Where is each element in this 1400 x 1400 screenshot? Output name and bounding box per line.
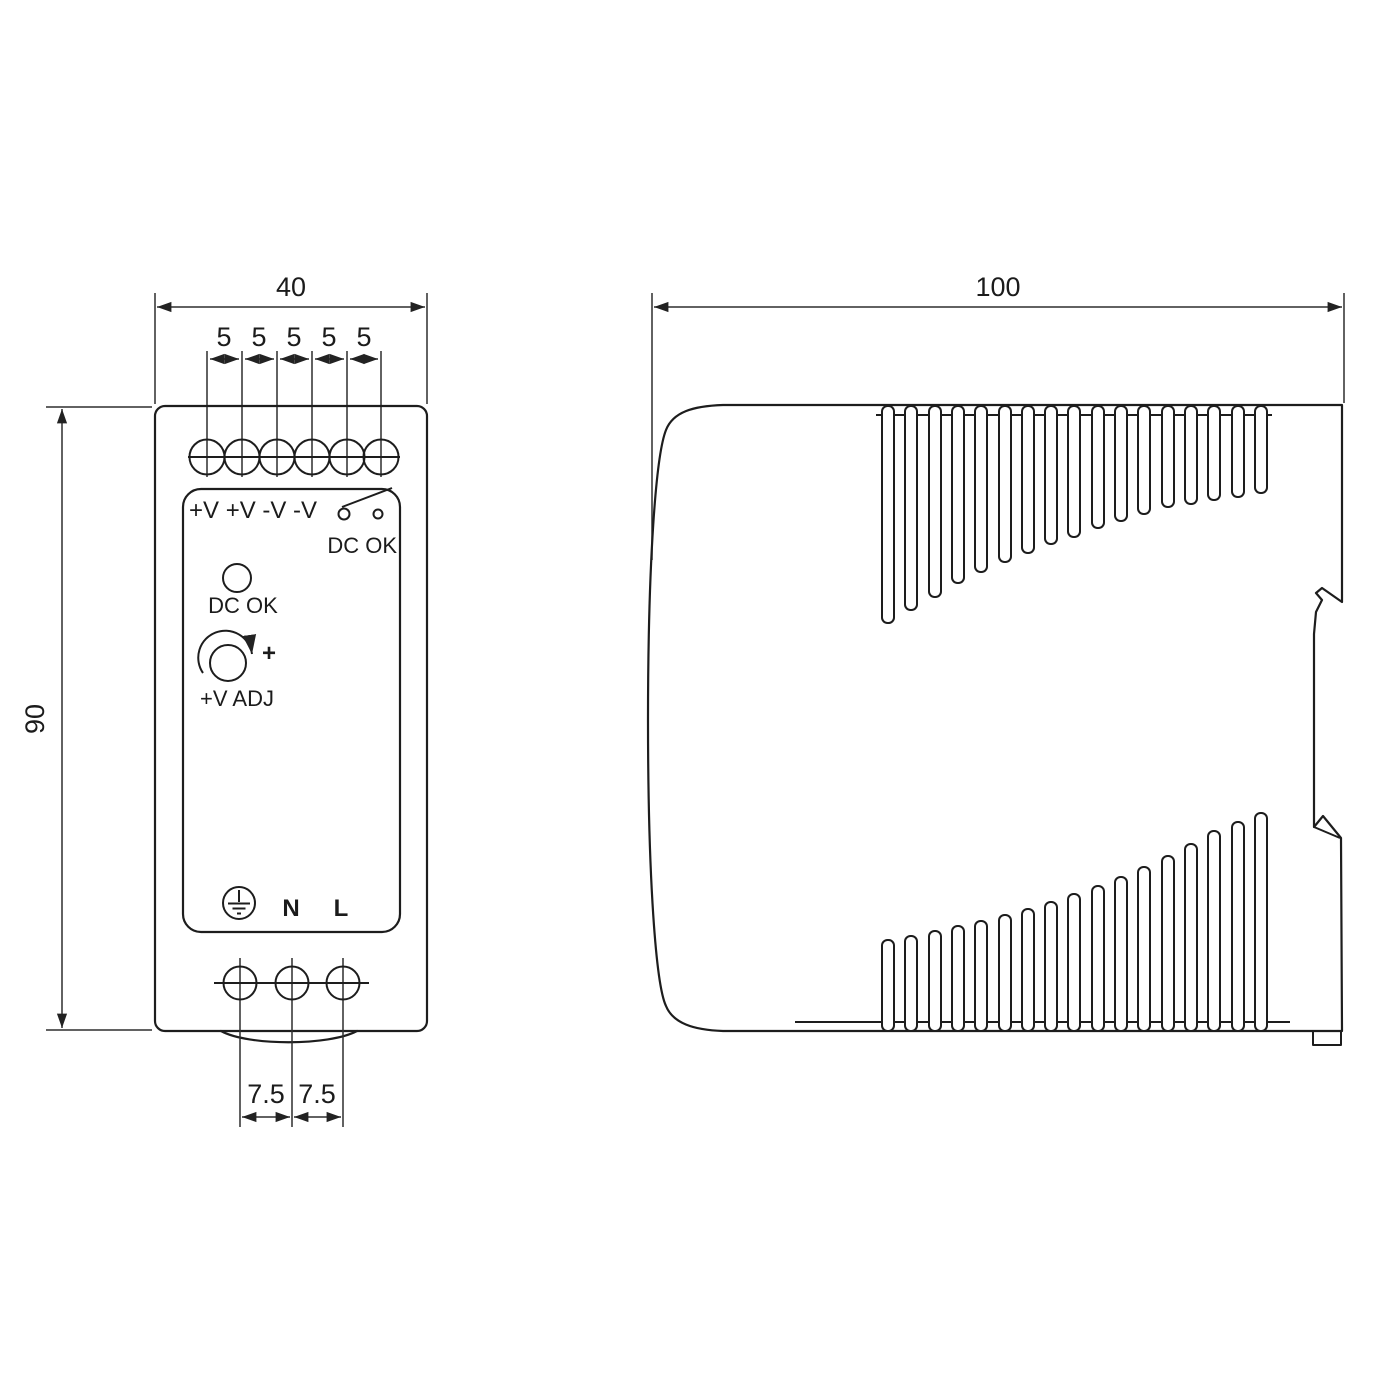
dimension-label-input-pitch: 7.5: [298, 1079, 336, 1109]
vent-slot: [1045, 902, 1057, 1031]
vent-slot: [1255, 813, 1267, 1031]
potentiometer-knob: [210, 645, 246, 681]
vent-slot: [929, 406, 941, 597]
dimension-label-width: 40: [276, 272, 306, 302]
input-terminal-block: [214, 958, 369, 1127]
front-view: 40 5 5 5 5 5 90: [20, 272, 427, 1127]
vent-slot: [1162, 856, 1174, 1031]
dimension-height: 90: [20, 407, 152, 1030]
vent-slot: [952, 406, 964, 583]
line-label: L: [334, 895, 349, 922]
drawing-canvas: 40 5 5 5 5 5 90: [0, 0, 1400, 1400]
vent-slot: [1185, 406, 1197, 504]
vent-slot: [1138, 406, 1150, 514]
mounting-foot: [1313, 1031, 1341, 1045]
dimension-label-depth: 100: [975, 272, 1020, 302]
side-view: 100: [648, 272, 1344, 1045]
contact-lever: [342, 488, 392, 507]
vent-slot: [999, 406, 1011, 562]
vent-slot: [975, 406, 987, 572]
vent-slot: [1255, 406, 1267, 493]
dimension-label-pitch: 5: [286, 322, 301, 352]
vent-slot: [905, 406, 917, 610]
vent-slot: [1068, 406, 1080, 537]
dimension-label-height: 90: [20, 704, 50, 734]
vent-slot: [1022, 406, 1034, 553]
adjust-plus-sign: +: [262, 640, 276, 667]
vent-slot: [1232, 406, 1244, 497]
vent-slot: [1092, 886, 1104, 1031]
vent-slots-bottom: [882, 813, 1267, 1031]
relay-contact-icon: [339, 488, 393, 520]
relay-contact-label: DC OK: [327, 533, 397, 558]
led-label: DC OK: [208, 593, 278, 618]
contact-dot: [339, 509, 350, 520]
vent-slot: [1045, 406, 1057, 544]
dimension-label-pitch: 5: [251, 322, 266, 352]
case-bottom-recess: [221, 1031, 357, 1042]
vent-slot: [1162, 406, 1174, 507]
potentiometer-icon: [198, 631, 252, 681]
adjust-label: +V ADJ: [200, 686, 274, 711]
dimension-label-pitch: 5: [321, 322, 336, 352]
vent-slot: [952, 926, 964, 1031]
led-indicator-icon: [223, 564, 251, 592]
vent-slots-top: [882, 406, 1267, 623]
protective-earth-icon: [223, 887, 255, 919]
output-terminal-block: [188, 440, 400, 475]
vent-slot: [1232, 822, 1244, 1031]
vent-slot: [1208, 406, 1220, 500]
vent-slot: [1115, 406, 1127, 521]
vent-slot: [905, 936, 917, 1031]
neutral-label: N: [282, 895, 299, 922]
vent-slot: [1208, 831, 1220, 1031]
vent-slot: [999, 915, 1011, 1031]
front-label-panel: +V +V -V -V DC OK DC OK + +V ADJ: [183, 488, 400, 932]
output-terminals-label: +V +V -V -V: [189, 497, 317, 524]
vent-slot: [882, 940, 894, 1031]
rotation-arrow: [198, 631, 252, 673]
vent-slot: [1022, 909, 1034, 1031]
vent-slot: [1185, 844, 1197, 1031]
vent-slot: [882, 406, 894, 623]
contact-dot: [374, 510, 383, 519]
vent-slot: [929, 931, 941, 1031]
dimension-label-input-pitch: 7.5: [247, 1079, 285, 1109]
vent-slot: [1115, 877, 1127, 1031]
dimension-label-pitch: 5: [356, 322, 371, 352]
dimension-drawing: 40 5 5 5 5 5 90: [0, 0, 1400, 1400]
vent-slot: [975, 921, 987, 1031]
vent-slot: [1138, 867, 1150, 1031]
vent-slot: [1068, 894, 1080, 1031]
vent-slot: [1092, 406, 1104, 528]
dimension-label-pitch: 5: [216, 322, 231, 352]
